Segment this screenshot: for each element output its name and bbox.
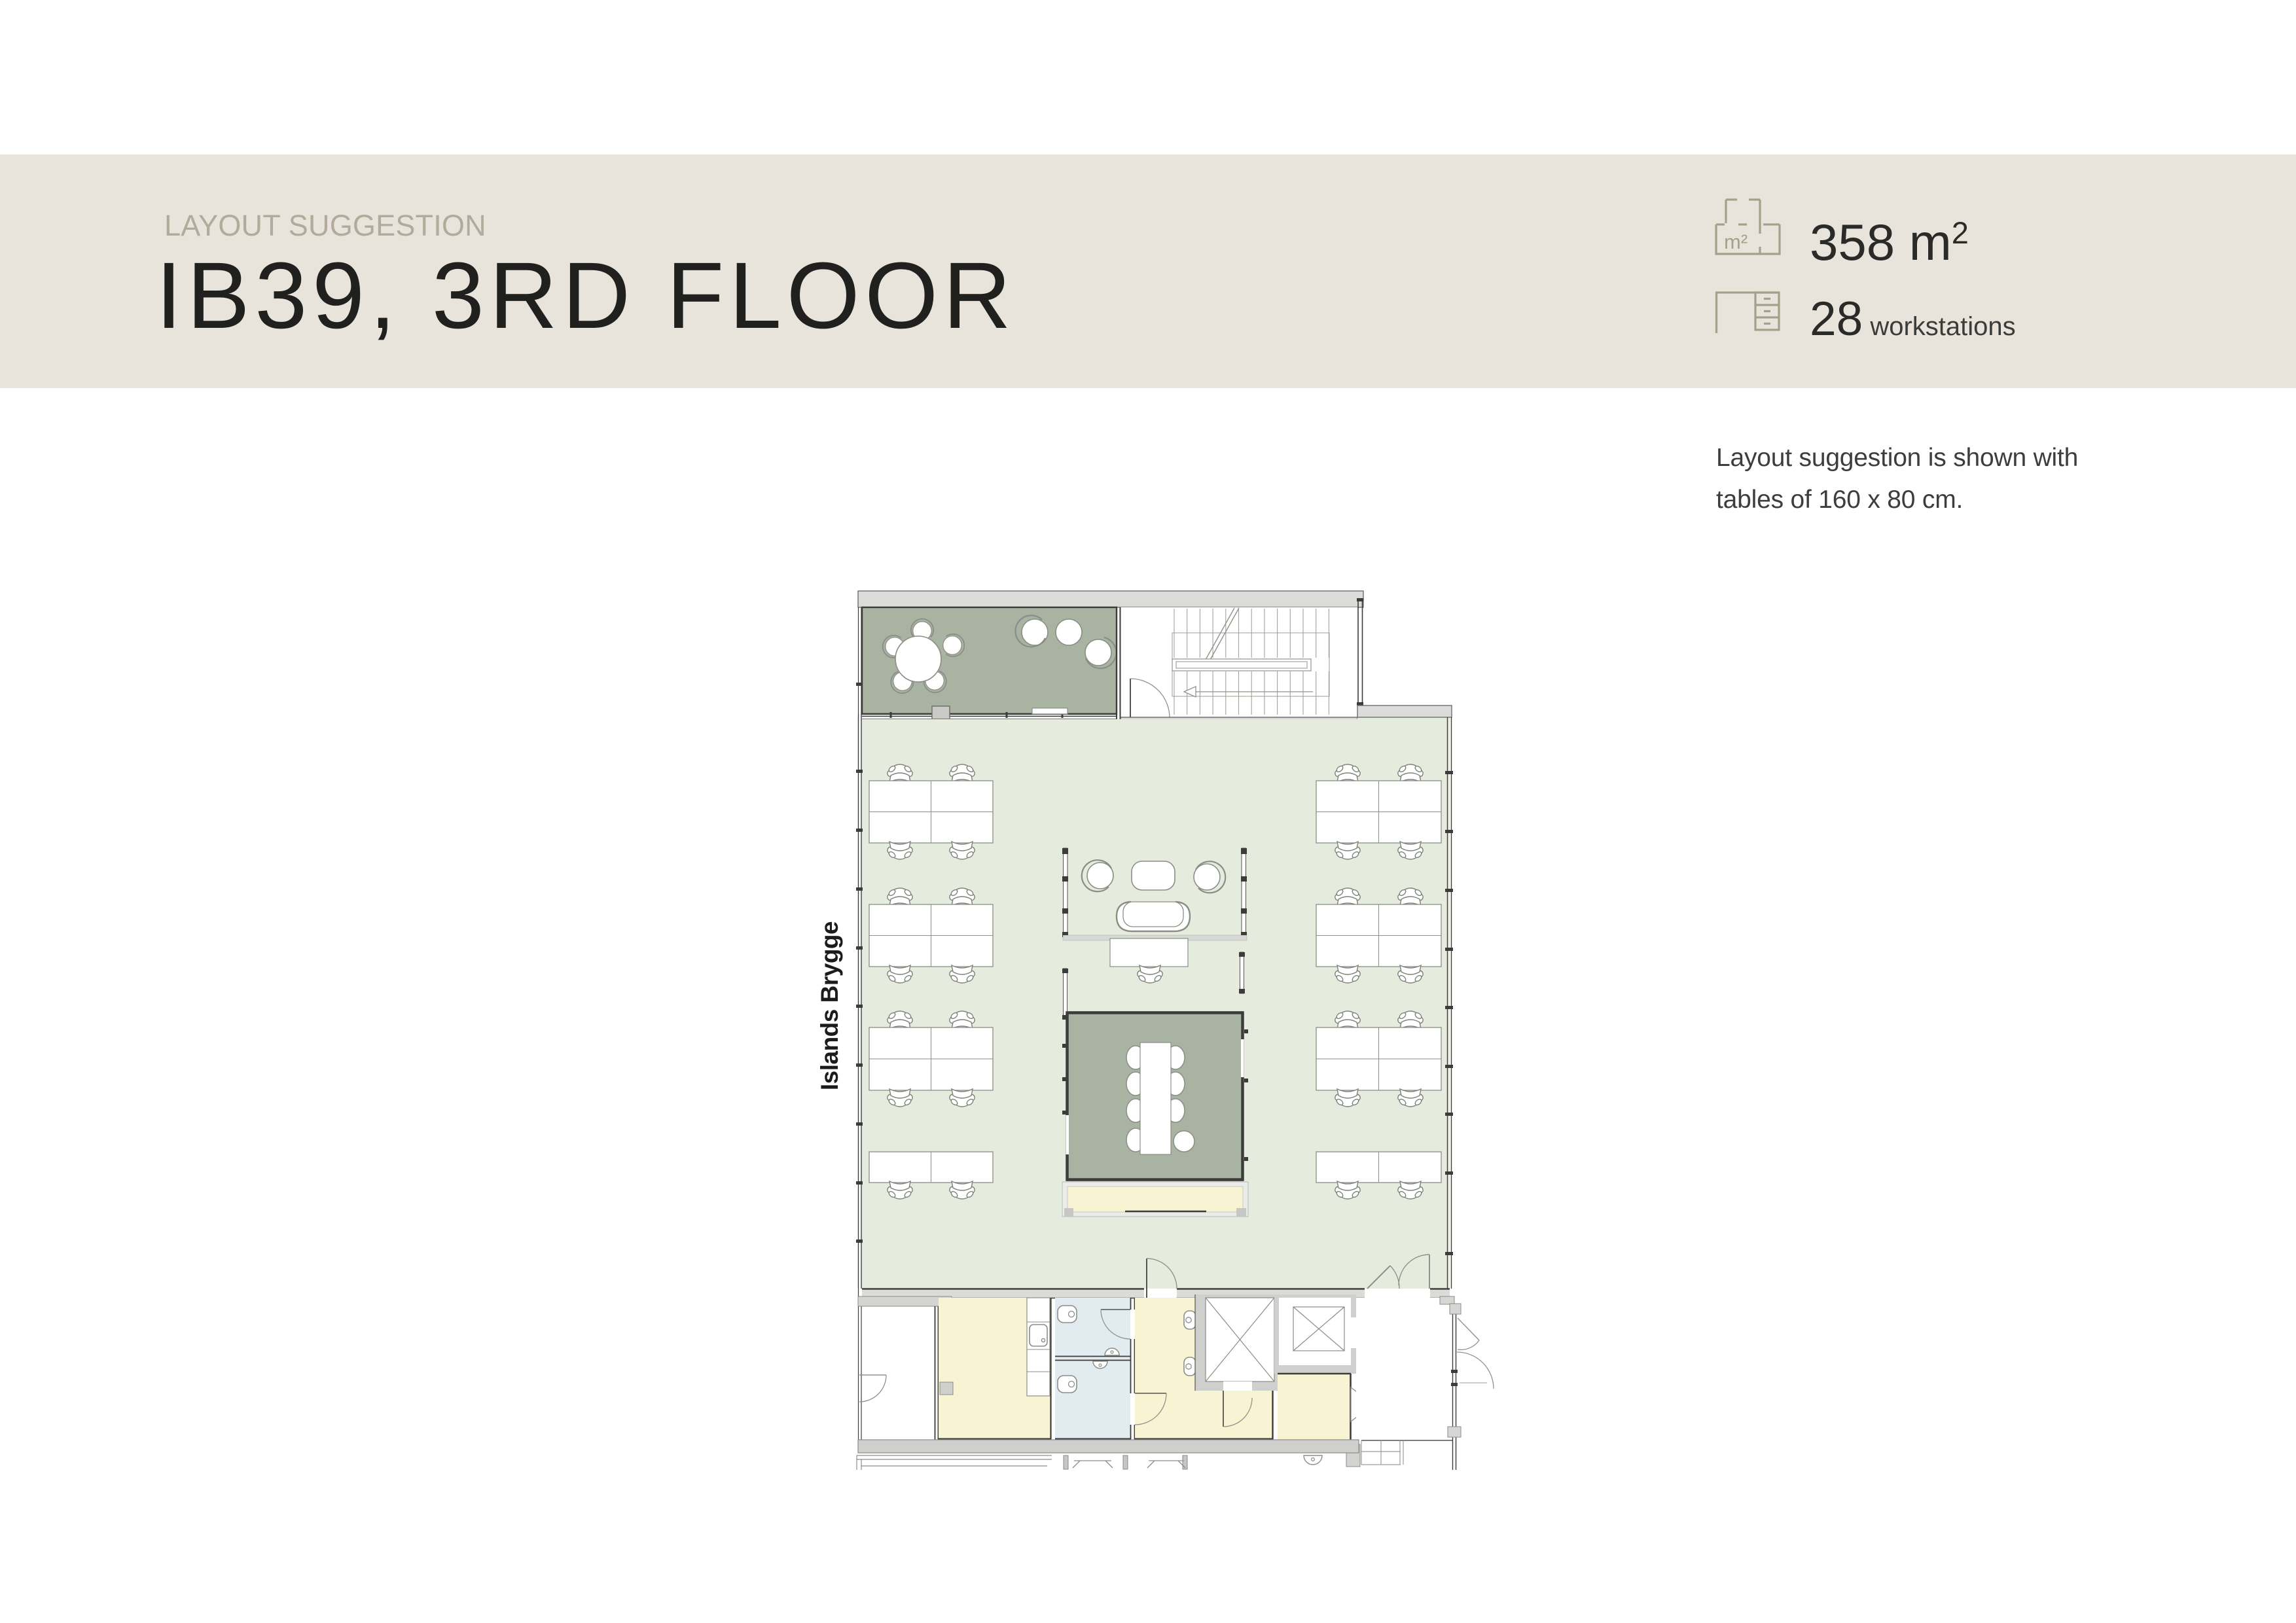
svg-text:Islands Brygge: Islands Brygge — [816, 921, 843, 1090]
